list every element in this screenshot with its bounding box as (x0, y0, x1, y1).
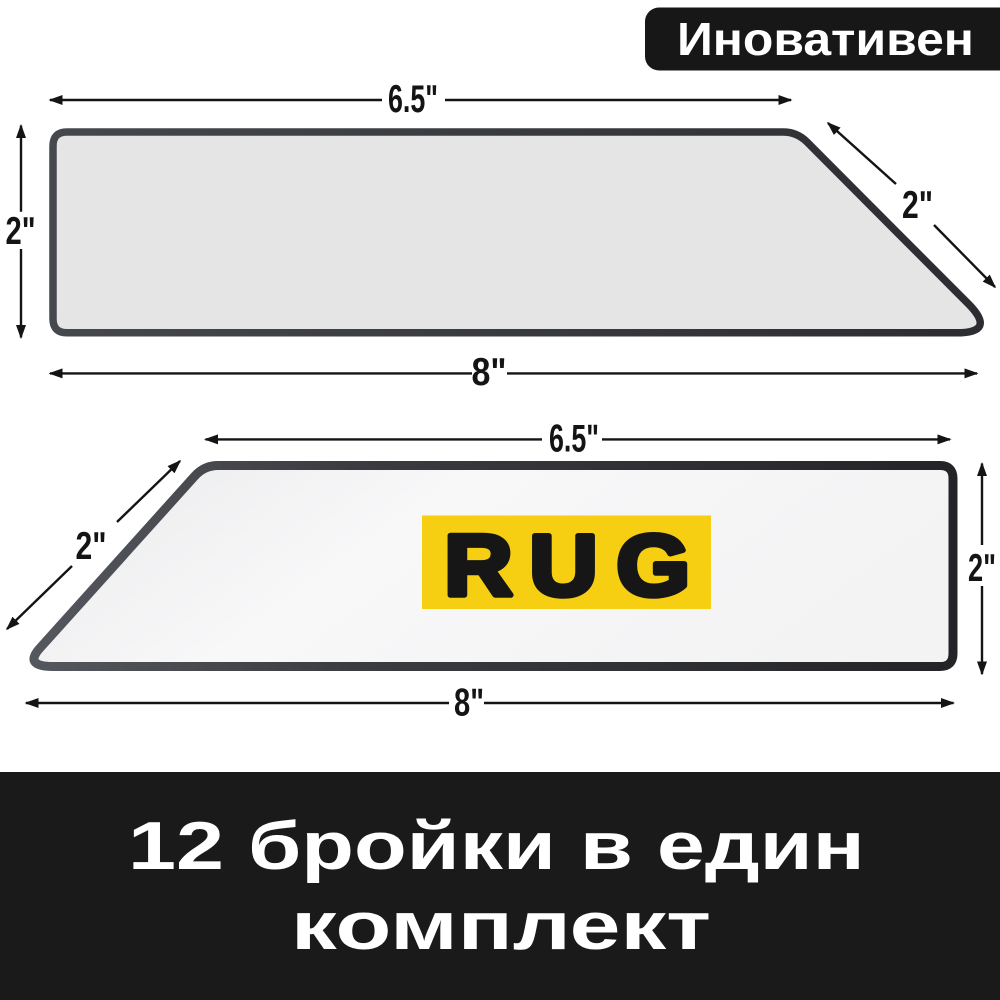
svg-text:8": 8" (472, 351, 507, 394)
svg-text:6.5": 6.5" (549, 418, 599, 461)
svg-text:Иновативен: Иновативен (677, 15, 974, 66)
svg-text:8": 8" (454, 682, 484, 725)
svg-text:R: R (444, 518, 512, 614)
svg-text:2": 2" (902, 184, 933, 227)
svg-text:12 бройки в един: 12 бройки в един (128, 809, 865, 884)
svg-text:U: U (529, 518, 597, 614)
svg-text:2": 2" (6, 210, 36, 253)
svg-text:2": 2" (968, 547, 996, 590)
svg-text:2": 2" (76, 525, 107, 568)
svg-text:комплект: комплект (291, 888, 711, 964)
svg-text:6.5": 6.5" (388, 78, 438, 121)
svg-text:G: G (617, 518, 691, 614)
